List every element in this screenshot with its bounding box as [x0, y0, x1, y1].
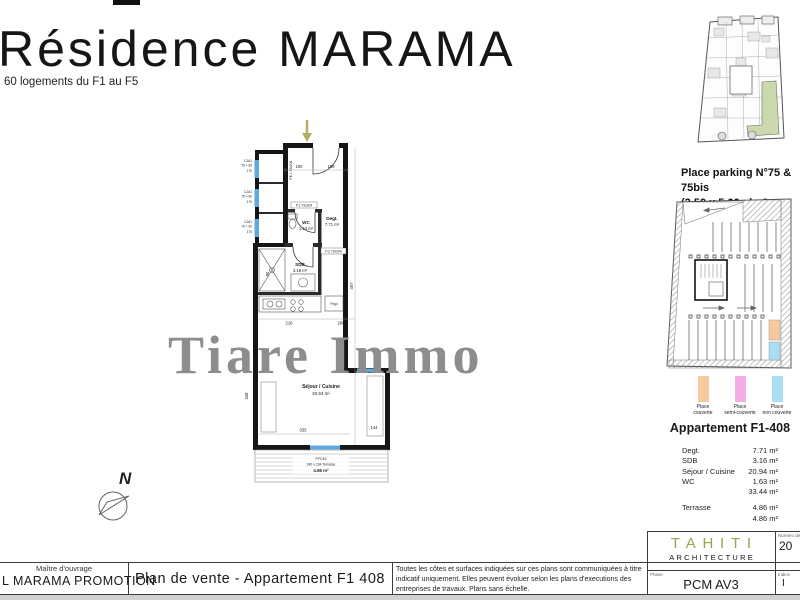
plan-walls — [253, 143, 390, 450]
table-row: Degt. 7.71 m² — [682, 446, 778, 456]
table-row: 4.86 m² — [682, 514, 778, 524]
legend-item-open: Place non couverte — [760, 376, 794, 417]
table-row: SDB 3.16 m² — [682, 456, 778, 466]
window-sill: 170 — [247, 169, 253, 173]
row-label: Degt. — [682, 446, 700, 456]
covered-swatch — [698, 376, 709, 402]
apartment-title: Appartement F1-408 — [668, 421, 792, 435]
row-value: 1.63 m² — [753, 477, 778, 487]
highlighted-stall-open — [769, 342, 780, 360]
semi-covered-swatch — [735, 376, 746, 402]
disclaimer-text: Toutes les côtes et surfaces indiquées s… — [396, 565, 642, 594]
parking-caption-line1: Place parking N°75 & 75bis — [681, 166, 799, 196]
footer-top-border — [0, 562, 800, 563]
page-edge-mark — [113, 0, 140, 5]
footer-divider — [775, 531, 776, 594]
indice-label: Indice — [778, 572, 790, 577]
dossier-value: 20 — [779, 539, 792, 553]
entry-arrow-icon — [302, 120, 312, 142]
row-value: 3.16 m² — [753, 456, 778, 466]
row-value: 7.71 m² — [753, 446, 778, 456]
phase-label: Phase — [650, 572, 663, 577]
table-row: Terrasse 4.86 m² — [682, 503, 778, 513]
room-wc-name: WC — [302, 220, 310, 225]
door-labels: P.1 73x204 P.2 73x204 PE.1 93x204 — [289, 160, 346, 254]
room-sejour-area: 20.94 m² — [312, 391, 330, 396]
window-label: CJA1 — [244, 159, 252, 163]
dim-90: 90 — [265, 271, 270, 276]
row-label: Terrasse — [682, 503, 711, 513]
parking-legend: Place couverte Place semi-couverte Place… — [686, 376, 794, 417]
legend-label: semi-couverte — [723, 410, 757, 416]
door-sdb-label: P.2 73x204 — [325, 250, 341, 254]
room-sdb-area: 3.16 m² — [293, 268, 308, 273]
legend-item-semi-covered: Place semi-couverte — [723, 376, 757, 417]
row-value: 33.44 m² — [748, 487, 778, 497]
drawing-title: Plan de vente - Appartement F1 408 — [128, 571, 392, 587]
key-plan — [678, 8, 794, 160]
row-label: SDB — [682, 456, 697, 466]
page-subtitle: 60 logements du F1 au F5 — [4, 76, 138, 88]
sheet-edge-strip — [0, 595, 800, 600]
dim-144: 144 — [371, 425, 379, 430]
stair-core — [695, 260, 727, 300]
window-size: 75 + 60 — [241, 225, 252, 229]
indice-value: I — [782, 578, 785, 589]
dim-348: 348 — [244, 392, 249, 400]
page-title: Résidence MARAMA — [0, 20, 516, 78]
row-value: 4.86 m² — [753, 514, 778, 524]
floor-plan: Frigo PFCA2 240 x 234 Terrasse 4.86 m² P… — [225, 116, 405, 488]
dim-109: 109 — [328, 164, 336, 169]
apartment-table: Degt. 7.71 m² SDB 3.16 m² Séjour / Cuisi… — [682, 446, 778, 524]
window-size: 75 + 60 — [241, 164, 252, 168]
door-wc-label: P.1 73x204 — [296, 204, 312, 208]
room-sdb-name: SDB — [295, 262, 305, 267]
phase-value: PCM AV3 — [647, 577, 775, 592]
highlighted-stall-covered — [769, 320, 780, 340]
dim-100: 100 — [296, 164, 304, 169]
terrace-code: PFCA2 — [316, 457, 327, 461]
row-label: WC — [682, 477, 695, 487]
footer-divider — [392, 562, 393, 594]
dim-216: 216 — [286, 321, 294, 326]
architect-subtitle: ARCHITECTURE — [647, 553, 775, 562]
open-swatch — [772, 376, 783, 402]
window-labels: CJA1 75 + 60 170 CJA1 75 + 60 170 CJA1 7… — [241, 159, 252, 234]
legend-label: couverte — [686, 410, 720, 416]
terrace-dims: 240 x 234 Terrasse — [307, 463, 336, 467]
row-label: Séjour / Cuisine — [682, 467, 735, 477]
fridge-label: Frigo — [330, 302, 337, 306]
table-row-total: 33.44 m² — [682, 487, 778, 497]
row-value: 20.94 m² — [748, 467, 778, 477]
dim-200: 200 — [338, 321, 346, 326]
window-size: 75 + 60 — [241, 195, 252, 199]
legend-label: non couverte — [760, 410, 794, 416]
architect-name: TAHITI — [647, 535, 775, 552]
room-sejour-name: Séjour / Cuisine — [302, 384, 340, 390]
window-sill: 170 — [247, 200, 253, 204]
owner-label: Maître d'ouvrage — [0, 564, 128, 573]
plan-partitions — [258, 182, 322, 295]
table-row: WC 1.63 m² — [682, 477, 778, 487]
dossier-label: Numéro de dossier — [778, 533, 800, 538]
room-degt-area: 7.71 m² — [325, 222, 340, 227]
dim-457: 457 — [349, 282, 354, 290]
dim-335: 335 — [300, 428, 308, 433]
window-label: CJA1 — [244, 190, 252, 194]
dim-lines — [258, 148, 355, 445]
room-wc-area: 1.63 m² — [299, 226, 314, 231]
terrace-area: 4.86 m² — [313, 468, 329, 473]
room-degt-name: Degt. — [326, 216, 337, 221]
row-value: 4.86 m² — [753, 503, 778, 513]
legend-item-covered: Place couverte — [686, 376, 720, 417]
terrace: PFCA2 240 x 234 Terrasse 4.86 m² — [255, 450, 388, 482]
window-sill: 170 — [247, 230, 253, 234]
window-label: CJA1 — [244, 220, 252, 224]
parking-plan — [655, 194, 797, 376]
north-label: N — [119, 469, 132, 488]
key-plan-tabs — [718, 16, 774, 25]
north-arrow: N — [85, 458, 149, 530]
table-row: Séjour / Cuisine 20.94 m² — [682, 467, 778, 477]
